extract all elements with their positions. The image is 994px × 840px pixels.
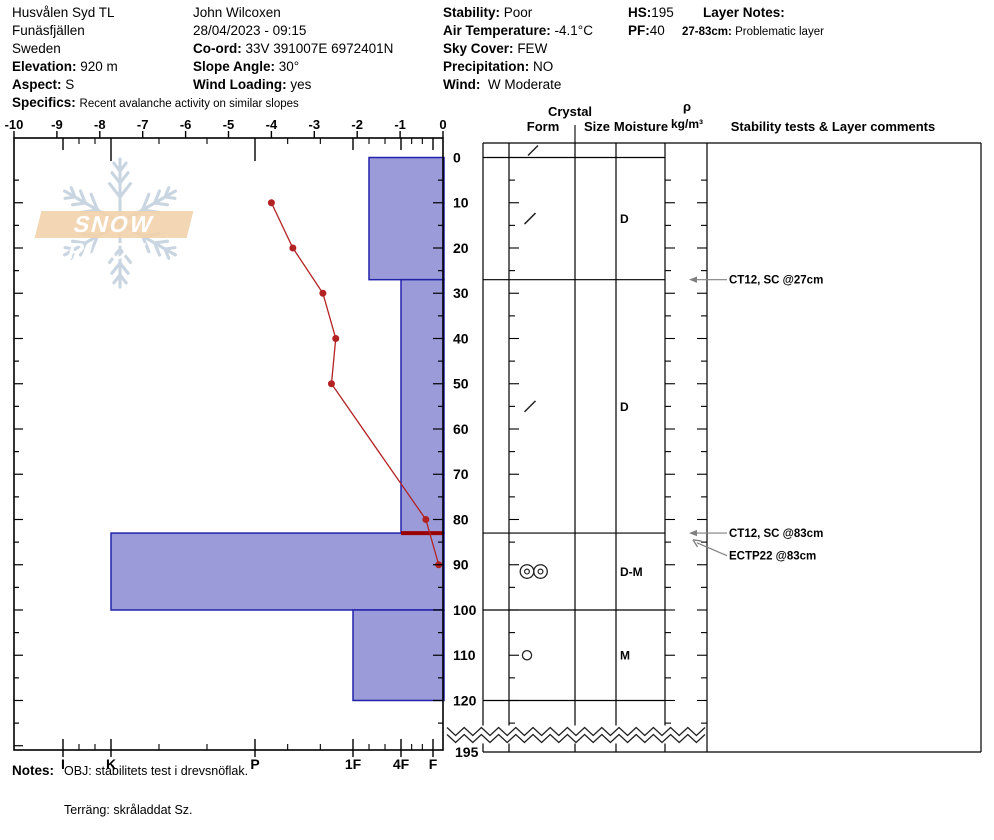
- depth-axis-label: 60: [453, 421, 469, 437]
- depth-axis-label: 30: [453, 285, 469, 301]
- temp-axis-label: 0: [439, 117, 446, 132]
- hardness-axis-label: K: [106, 756, 116, 772]
- temp-axis-label: -2: [351, 117, 363, 132]
- crystal-form-slash: [528, 146, 538, 156]
- moisture-value: D: [620, 400, 629, 414]
- depth-axis-label: 40: [453, 330, 469, 346]
- hardness-axis-label: 1F: [345, 756, 362, 772]
- depth-break-mask: [446, 726, 706, 744]
- temp-axis-label: -4: [266, 117, 278, 132]
- size-header: Size: [584, 119, 610, 134]
- hardness-axis-label: I: [61, 756, 65, 772]
- crystal-form-circle: [520, 565, 534, 579]
- depth-axis-label: 100: [453, 602, 477, 618]
- crystal-form-inner-circle: [538, 569, 543, 574]
- snow-profile-chart: -10-9-8-7-6-5-4-3-2-10IKP1F4FF0102030405…: [0, 0, 994, 840]
- depth-axis-label: 70: [453, 466, 469, 482]
- temp-axis-label: -7: [137, 117, 149, 132]
- depth-axis-label: 0: [453, 150, 461, 166]
- depth-axis-label: 50: [453, 376, 469, 392]
- total-depth-label: 195: [455, 744, 479, 760]
- hardness-axis-label: P: [250, 756, 259, 772]
- temp-axis-label: -10: [5, 117, 24, 132]
- depth-axis-label: 20: [453, 240, 469, 256]
- depth-axis-label: 120: [453, 692, 477, 708]
- crystal-form-circle: [522, 651, 531, 660]
- crystal-form-circle: [534, 565, 548, 579]
- temp-axis-label: -9: [51, 117, 63, 132]
- depth-axis-label: 80: [453, 511, 469, 527]
- stability-test-label: ECTP22 @83cm: [729, 551, 816, 563]
- form-header: Form: [527, 119, 560, 134]
- hardness-bar-layer-4: [353, 610, 444, 700]
- temperature-point: [319, 290, 326, 297]
- crystal-form-slash: [525, 401, 536, 412]
- moisture-value: M: [620, 649, 630, 663]
- moisture-header: Moisture: [614, 119, 668, 134]
- temperature-point: [289, 244, 296, 251]
- stability-test-arrow: [697, 543, 727, 556]
- hardness-axis-label: 4F: [393, 756, 410, 772]
- hardness-bar-layer-1: [369, 158, 444, 280]
- moisture-value: D-M: [620, 565, 643, 579]
- depth-axis-label: 110: [453, 647, 476, 663]
- temperature-point: [268, 199, 275, 206]
- comments-header: Stability tests & Layer comments: [731, 119, 935, 134]
- temperature-point: [328, 380, 335, 387]
- crystal-form-inner-circle: [525, 569, 530, 574]
- snowpilot-profile-page: { "header": { "location": { "title": "Hu…: [0, 0, 994, 840]
- stability-test-arrowhead: [689, 530, 697, 536]
- moisture-value: D: [620, 212, 629, 226]
- depth-axis-label: 10: [453, 195, 469, 211]
- temperature-point: [422, 516, 429, 523]
- density-units-header: kg/m³: [671, 117, 703, 131]
- hardness-axis-label: F: [429, 756, 438, 772]
- stability-test-arrowhead: [689, 276, 697, 282]
- hardness-bar-layer-3: [111, 533, 444, 610]
- temp-axis-label: -3: [309, 117, 321, 132]
- stability-test-label: CT12, SC @83cm: [729, 528, 823, 540]
- temp-axis-label: -1: [394, 117, 406, 132]
- temp-axis-label: -5: [223, 117, 235, 132]
- density-header: ρ: [683, 99, 691, 114]
- hardness-bar-layer-2: [401, 280, 444, 533]
- crystal-header: Crystal: [548, 104, 592, 119]
- temp-axis-label: -6: [180, 117, 192, 132]
- stability-test-label: CT12, SC @27cm: [729, 275, 823, 287]
- depth-axis-label: 90: [453, 557, 469, 573]
- temperature-point: [332, 335, 339, 342]
- crystal-form-slash: [525, 213, 536, 224]
- temp-axis-label: -8: [94, 117, 106, 132]
